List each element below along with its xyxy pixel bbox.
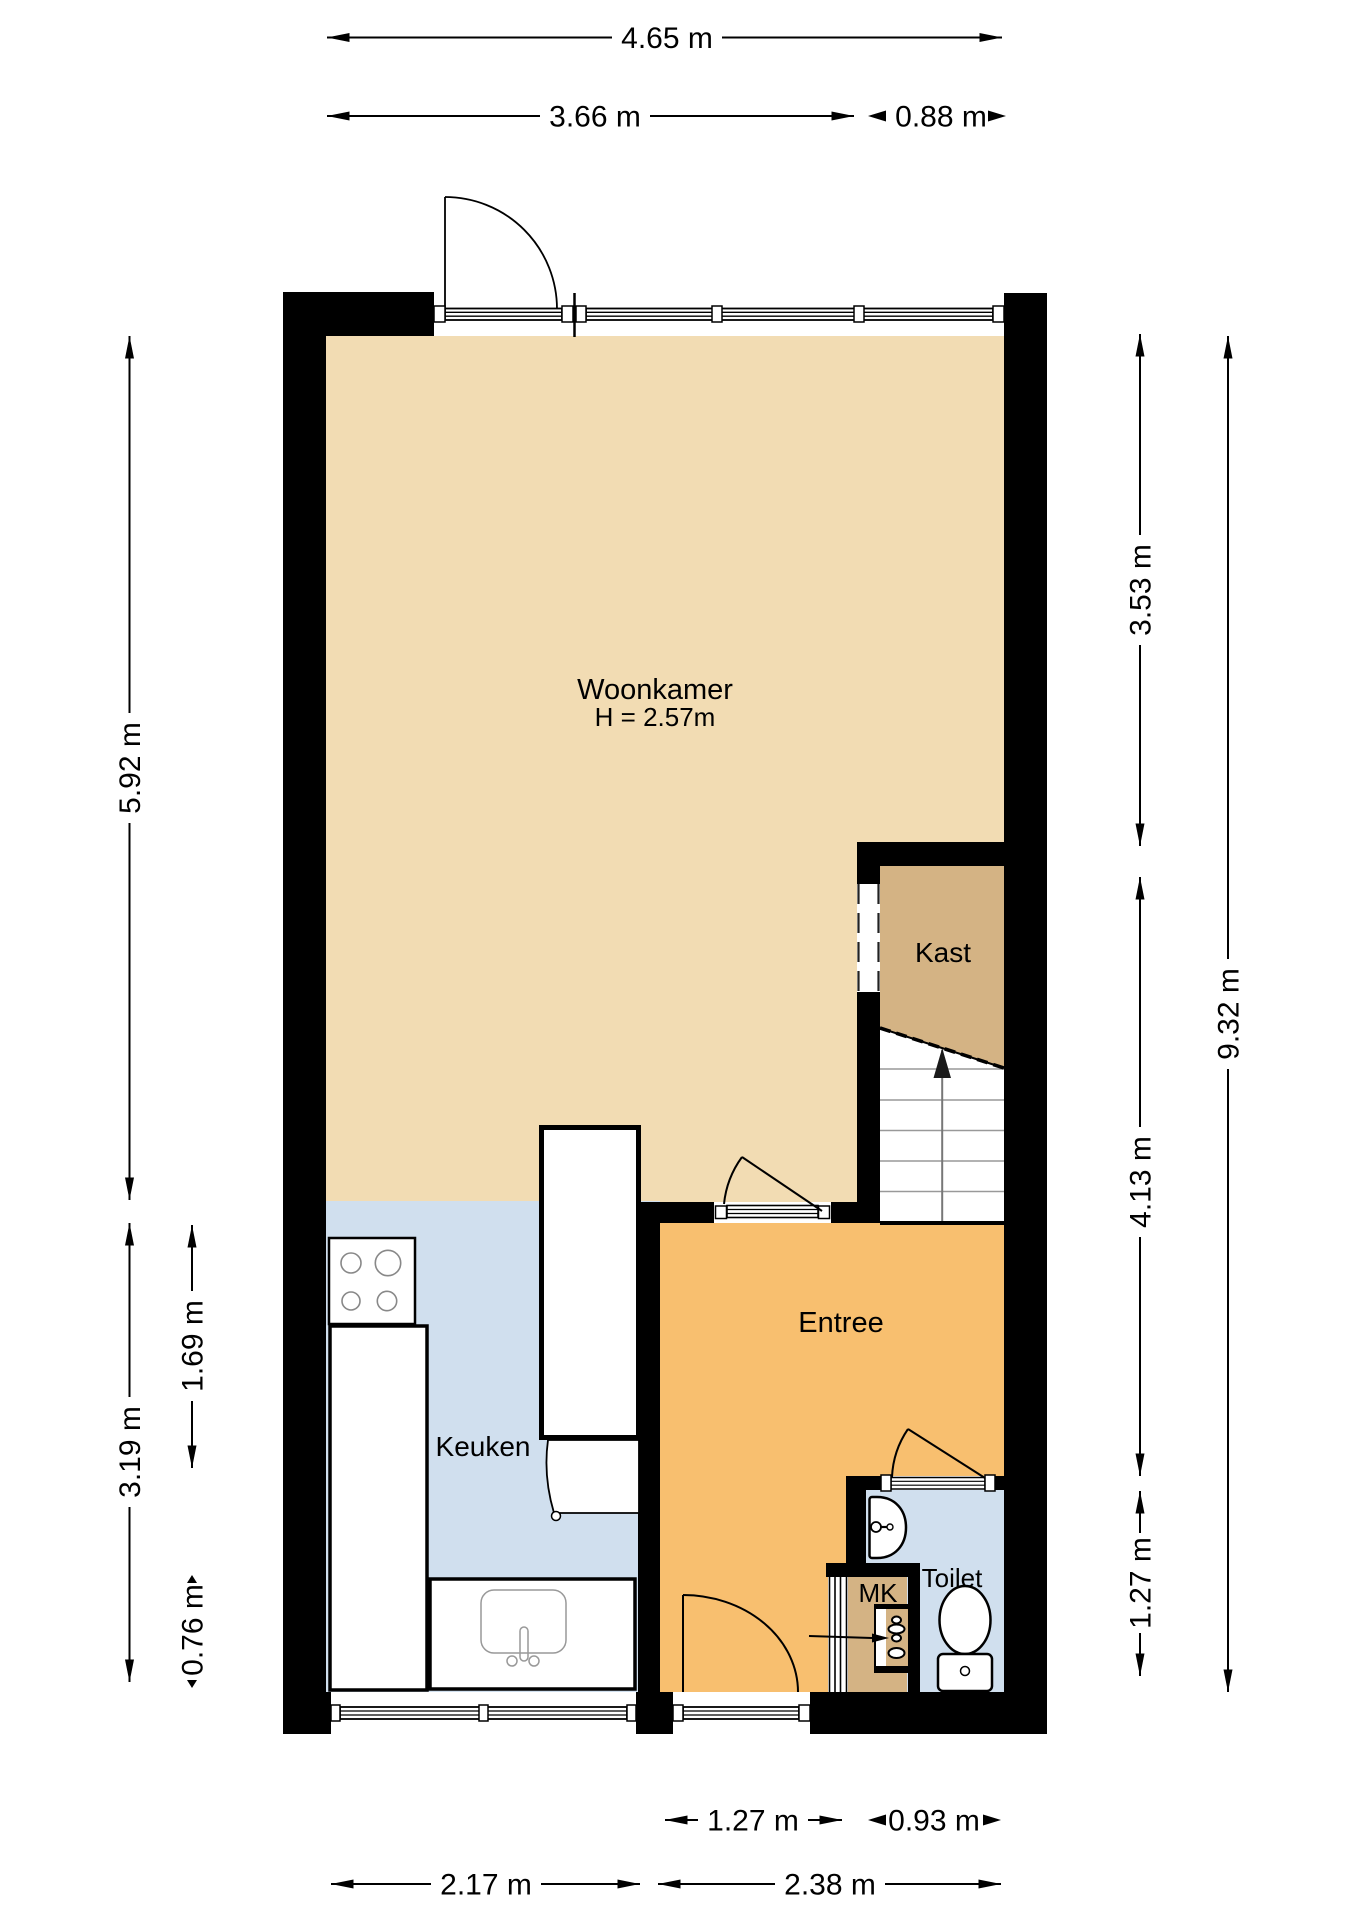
svg-text:MK: MK: [859, 1578, 899, 1608]
svg-text:2.17 m: 2.17 m: [440, 1869, 532, 1902]
svg-text:3.53 m: 3.53 m: [1125, 544, 1158, 636]
svg-text:0.76 m: 0.76 m: [177, 1584, 210, 1676]
svg-text:H = 2.57m: H = 2.57m: [595, 702, 716, 732]
svg-text:0.88 m: 0.88 m: [895, 101, 987, 134]
svg-text:Keuken: Keuken: [436, 1431, 531, 1462]
svg-text:Kast: Kast: [915, 937, 971, 968]
svg-text:3.19 m: 3.19 m: [114, 1406, 147, 1498]
svg-text:Entree: Entree: [798, 1307, 883, 1339]
svg-text:3.66 m: 3.66 m: [549, 101, 641, 134]
svg-text:5.92 m: 5.92 m: [114, 722, 147, 814]
svg-text:1.69 m: 1.69 m: [177, 1300, 210, 1392]
svg-text:9.32 m: 9.32 m: [1213, 968, 1246, 1060]
svg-text:1.27 m: 1.27 m: [1125, 1537, 1158, 1629]
svg-text:1.27 m: 1.27 m: [707, 1805, 799, 1838]
svg-text:Toilet: Toilet: [922, 1563, 983, 1593]
svg-text:0.93 m: 0.93 m: [888, 1805, 980, 1838]
svg-text:4.13 m: 4.13 m: [1125, 1136, 1158, 1228]
svg-text:4.65 m: 4.65 m: [621, 22, 713, 55]
svg-text:2.38 m: 2.38 m: [784, 1869, 876, 1902]
